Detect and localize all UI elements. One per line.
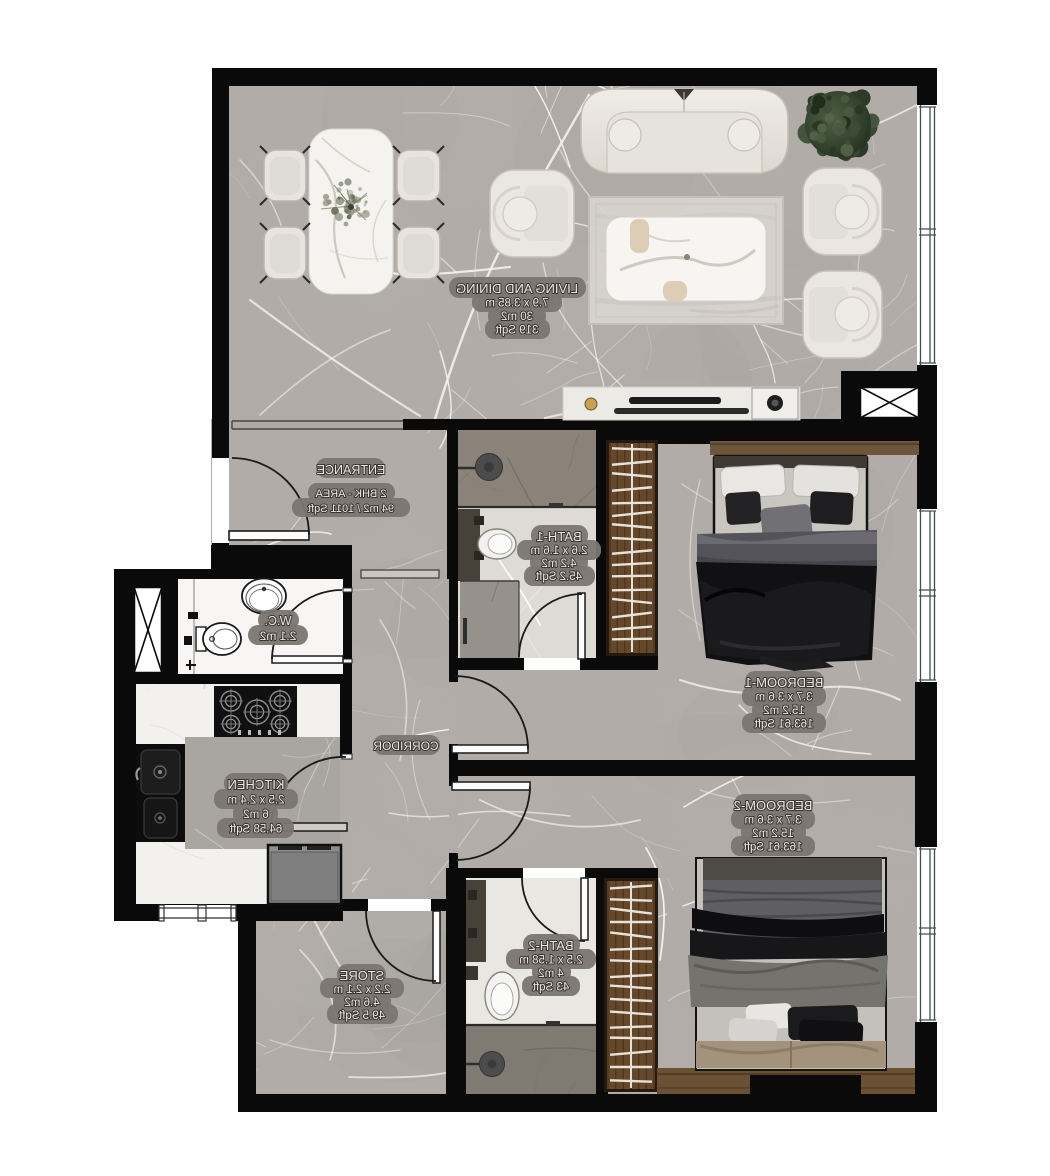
svg-text:49.5 Sqft: 49.5 Sqft: [338, 1010, 385, 1022]
svg-text:163.61 Sqft: 163.61 Sqft: [743, 842, 803, 854]
svg-text:2.5 x 1.58 m: 2.5 x 1.58 m: [519, 955, 582, 967]
svg-text:BEDROOM-2: BEDROOM-2: [734, 798, 813, 813]
svg-text:BATH-1: BATH-1: [536, 529, 581, 544]
svg-text:2.1 m2: 2.1 m2: [259, 629, 296, 643]
svg-text:CORRIDOR: CORRIDOR: [373, 739, 439, 753]
svg-text:W.C.: W.C.: [264, 614, 291, 628]
svg-text:43 Sqft: 43 Sqft: [532, 982, 569, 994]
svg-text:30 m2: 30 m2: [501, 311, 533, 323]
svg-text:2.2 x 2.1 m: 2.2 x 2.1 m: [334, 984, 391, 996]
svg-text:STORE: STORE: [339, 968, 384, 983]
svg-text:319 Sqft: 319 Sqft: [495, 325, 539, 337]
svg-text:15.2 m2: 15.2 m2: [752, 828, 794, 840]
svg-text:2.5 x 2.4 m: 2.5 x 2.4 m: [228, 795, 285, 807]
svg-text:2 BHK - AREA: 2 BHK - AREA: [315, 488, 387, 500]
svg-text:94 m2 / 1011 Sqft: 94 m2 / 1011 Sqft: [308, 503, 394, 515]
svg-text:64.58 Sqft: 64.58 Sqft: [229, 824, 282, 836]
svg-text:BEDROOM-1: BEDROOM-1: [745, 675, 824, 690]
svg-text:BATH-2: BATH-2: [528, 938, 573, 953]
svg-text:7.9 x 3.85 m: 7.9 x 3.85 m: [485, 298, 548, 310]
svg-text:3.7 x 3.6 m: 3.7 x 3.6 m: [745, 815, 802, 827]
svg-text:LIVING AND DINING: LIVING AND DINING: [456, 281, 578, 296]
svg-text:2.6 x 1.6 m: 2.6 x 1.6 m: [531, 545, 588, 557]
svg-text:163.61 Sqft: 163.61 Sqft: [754, 719, 814, 731]
svg-text:ENTRANCE: ENTRANCE: [317, 463, 386, 477]
svg-text:6 m2: 6 m2: [243, 809, 269, 821]
svg-text:15.2 m2: 15.2 m2: [763, 705, 805, 717]
svg-text:4.6 m2: 4.6 m2: [344, 997, 379, 1009]
svg-text:KITCHEN: KITCHEN: [227, 777, 284, 792]
svg-text:4 m2: 4 m2: [538, 968, 564, 980]
svg-text:4.2 m2: 4.2 m2: [541, 558, 576, 570]
svg-text:3.7 x 3.6 m: 3.7 x 3.6 m: [756, 692, 813, 704]
svg-text:45.2 Sqft: 45.2 Sqft: [535, 571, 582, 583]
